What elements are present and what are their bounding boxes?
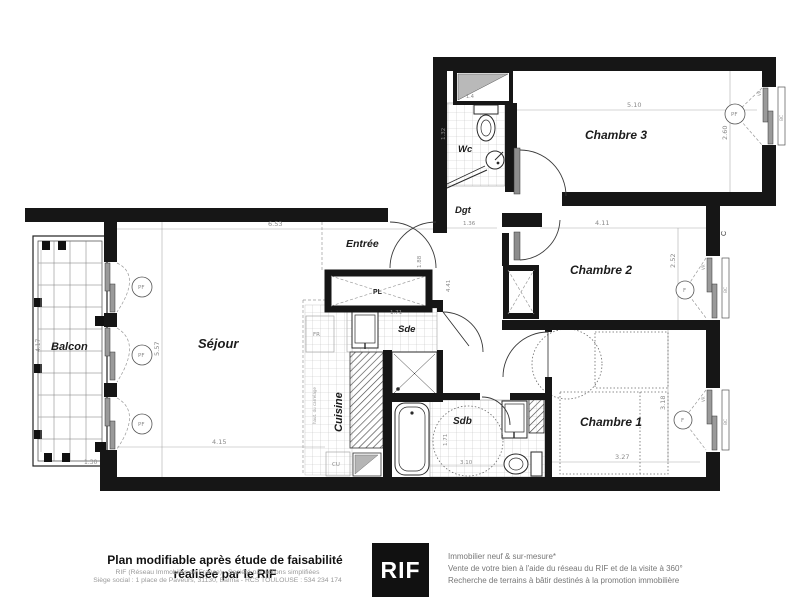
- vr-label-ch2: VR: [701, 264, 706, 270]
- sde-door-arc: [443, 312, 483, 352]
- closet-chambre2: [506, 268, 536, 316]
- toilet-tank-icon: [474, 105, 498, 114]
- sdb-toilet-icon: [504, 454, 528, 474]
- dim-hall: 4.41: [446, 280, 452, 292]
- pf-label-2: PF: [138, 353, 144, 359]
- marker-c: C: [721, 231, 728, 236]
- footer-services: Immobilier neuf & sur-mesure* Vente de v…: [448, 551, 778, 587]
- sdb-toilet-tank-icon: [531, 452, 542, 476]
- balcon-label: Balcon: [51, 341, 88, 353]
- dim-ch2-w: 4.11: [595, 219, 609, 227]
- floorplan-drawing: Balcon Séjour Entrée Sde Sdb Wc Dgt Cham…: [0, 0, 800, 600]
- wc-label: Wc: [458, 144, 473, 155]
- chambre2-door-leaf: [514, 232, 520, 260]
- bc-label-ch2: BC: [723, 287, 729, 293]
- pf-label-ch3: PF: [731, 112, 737, 118]
- chambre3-door-arc: [520, 150, 566, 196]
- footer-company-line3: Siège social : 1 place de Paveurs, 31130…: [75, 577, 360, 585]
- pf-label-1: PF: [138, 285, 144, 291]
- dim-ch1-h: 3.18: [659, 396, 667, 410]
- window-sejour-2: [105, 328, 152, 382]
- sde-label: Sde: [398, 324, 416, 335]
- pf-label-3: PF: [138, 422, 144, 428]
- dim-sejour-top: 6.53: [268, 220, 282, 228]
- closet-pl-label: PL: [373, 289, 383, 296]
- footer-company-lines: RIF (Réseau Immobilier de France) - Soci…: [75, 569, 360, 586]
- dim-sdb-w: 3.10: [460, 460, 473, 466]
- fridge-label: FR: [313, 332, 320, 338]
- chambre3-label: Chambre 3: [585, 128, 647, 142]
- dim-sejour-left: 5.57: [153, 342, 161, 356]
- sejour-label: Séjour: [198, 336, 239, 351]
- f-label-ch1: F: [681, 418, 684, 424]
- cuisine-label: Cuisine: [333, 392, 345, 432]
- dim-entree-passage: 1.88: [417, 255, 423, 268]
- entree-label: Entrée: [346, 238, 379, 250]
- sdb-label: Sdb: [453, 416, 472, 427]
- dim-dgt: 1.36: [463, 221, 476, 227]
- dim-wc-h: 1.32: [441, 128, 447, 140]
- window-sejour-3: [105, 398, 152, 449]
- dgt-label: Dgt: [455, 205, 472, 216]
- dim-ch2-h: 2.52: [669, 254, 677, 268]
- window-sejour-1: [105, 263, 152, 312]
- footer-service-line1: Immobilier neuf & sur-mesure*: [448, 551, 778, 563]
- footer-service-line3: Recherche de terrains à bâtir destinés à…: [448, 575, 778, 587]
- dim-sdb-h: 1.71: [443, 434, 449, 446]
- footer-company-line2: RIF (Réseau Immobilier de France) - Soci…: [75, 569, 360, 577]
- rif-logo: RIF: [372, 543, 429, 597]
- vr-label-ch1: VR: [701, 396, 706, 402]
- chambre1-furniture: [560, 332, 668, 474]
- dim-sejour-bottom: 4.15: [212, 438, 226, 446]
- rif-logo-text: RIF: [380, 557, 420, 584]
- chambre1-label: Chambre 1: [580, 415, 642, 429]
- toilet-icon: [477, 115, 495, 141]
- sde-sink-icon: [352, 312, 378, 348]
- footer-service-line2: Vente de votre bien à l'aide du réseau d…: [448, 563, 778, 575]
- dim-ch3-w: 5.10: [627, 101, 641, 109]
- dim-ch1-w: 3.27: [615, 453, 629, 461]
- bc-label-ch1: BC: [723, 419, 729, 425]
- cuisine-note: haut. du carrelage: [312, 387, 317, 424]
- dim-balcon-h: 4.17: [35, 338, 42, 352]
- cooker-label: CU: [332, 462, 340, 468]
- chambre3-door-leaf: [514, 148, 520, 194]
- dim-sde: 1.71: [390, 310, 402, 316]
- room-wc: [447, 103, 505, 186]
- dim-ch3-h: 2.60: [721, 126, 729, 140]
- chambre1-door-arc: [503, 332, 548, 377]
- vr-label-ch3: VR: [757, 90, 762, 96]
- chambre2-label: Chambre 2: [570, 263, 632, 277]
- duct-hatch: [529, 399, 544, 433]
- dim-balcon-w: 1.30: [84, 459, 98, 466]
- bc-label-ch3: BC: [779, 115, 785, 121]
- floorplan-page: Balcon Séjour Entrée Sde Sdb Wc Dgt Cham…: [0, 0, 800, 600]
- dim-wc-w: 1.4: [466, 94, 474, 100]
- duct-box: [455, 71, 511, 103]
- kitchen-counter-hatch: [350, 352, 383, 448]
- f-label-ch2: F: [683, 288, 686, 294]
